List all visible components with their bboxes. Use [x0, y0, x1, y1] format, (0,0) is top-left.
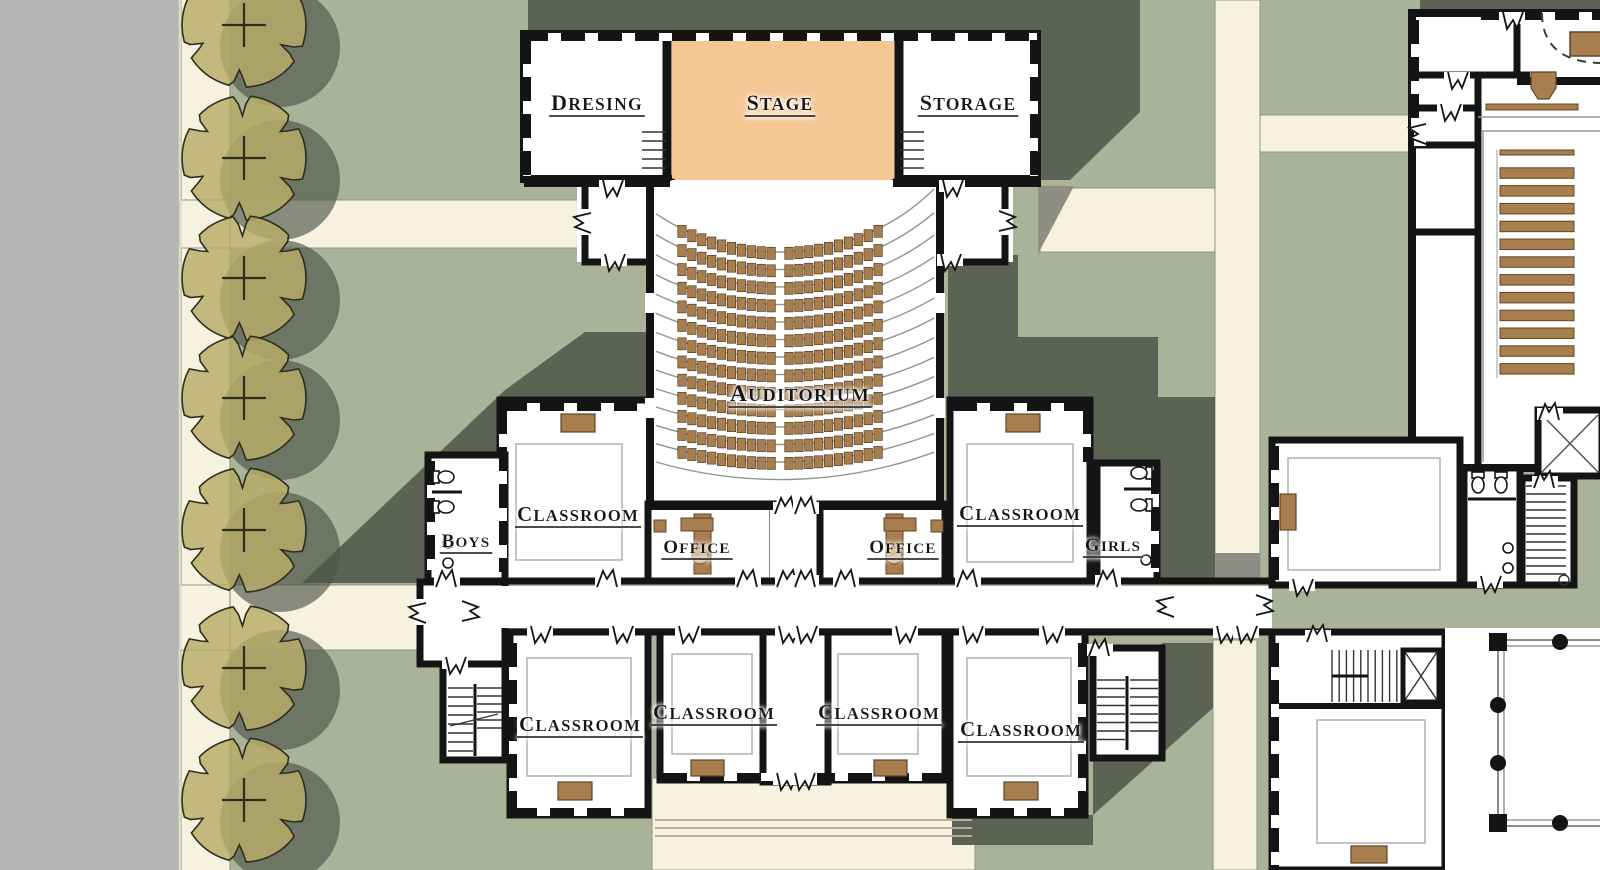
pew — [1500, 257, 1574, 268]
auditorium-seat — [834, 436, 842, 448]
auditorium-seat — [747, 263, 755, 275]
auditorium-seat — [678, 282, 686, 294]
auditorium-seat — [717, 330, 725, 342]
auditorium-seat — [767, 317, 775, 329]
auditorium-seat — [815, 456, 823, 468]
auditorium-seat — [698, 415, 706, 427]
auditorium-seat — [864, 359, 872, 371]
auditorium-seat — [854, 307, 862, 319]
auditorium-seat — [785, 352, 793, 364]
auditorium-seat — [805, 369, 813, 381]
auditorium-seat — [854, 361, 862, 373]
auditorium-seat — [678, 319, 686, 331]
room-label-classroom-bottom-1: CLASSROOM — [517, 712, 643, 737]
auditorium-seat — [688, 267, 696, 279]
auditorium-seat — [874, 374, 882, 386]
auditorium-seat — [747, 246, 755, 258]
auditorium-seat — [688, 286, 696, 298]
altar-rail — [1486, 104, 1578, 110]
auditorium-seat — [678, 374, 686, 386]
auditorium-seat — [678, 245, 686, 257]
auditorium-seat — [844, 345, 852, 357]
auditorium-seat — [688, 322, 696, 334]
auditorium-seat — [678, 356, 686, 368]
auditorium-seat — [708, 399, 716, 411]
auditorium-seat — [785, 300, 793, 312]
sink-icon — [1503, 543, 1513, 553]
auditorium-seat — [805, 404, 813, 416]
auditorium-seat — [874, 225, 882, 237]
auditorium-seat — [727, 314, 735, 326]
auditorium-seat — [854, 271, 862, 283]
teacher-desk — [561, 414, 595, 432]
auditorium-seat — [678, 446, 686, 458]
floor-plan-drawing: DRESINGSTAGESTORAGEAUDITORIUMCLASSROOMBO… — [0, 0, 1600, 870]
auditorium-seat — [834, 258, 842, 270]
file-cabinet — [654, 520, 666, 532]
auditorium-seat — [824, 260, 832, 272]
auditorium-seat — [864, 267, 872, 279]
toilet-icon — [1495, 477, 1507, 493]
auditorium-seat — [767, 300, 775, 312]
auditorium-seat — [708, 274, 716, 286]
auditorium-seat — [785, 247, 793, 259]
auditorium-seat — [815, 280, 823, 292]
auditorium-seat — [747, 369, 755, 381]
auditorium-seat — [795, 422, 803, 434]
pew — [1500, 239, 1574, 250]
auditorium-seat — [815, 368, 823, 380]
auditorium-seat — [737, 333, 745, 345]
pew — [1500, 364, 1574, 375]
auditorium-seat — [824, 455, 832, 467]
auditorium-seat — [844, 434, 852, 446]
auditorium-seat — [737, 438, 745, 450]
path-vertical-south — [1213, 640, 1257, 870]
auditorium-seat — [747, 281, 755, 293]
pew — [1500, 203, 1574, 214]
auditorium-seat — [795, 334, 803, 346]
auditorium-seat — [767, 440, 775, 452]
auditorium-seat — [698, 379, 706, 391]
auditorium-seat — [708, 237, 716, 249]
auditorium-seat — [698, 361, 706, 373]
room-label-auditorium: AUDITORIUM — [728, 381, 872, 407]
auditorium-seat — [854, 325, 862, 337]
room-label-text: CLASSROOM — [959, 501, 1081, 525]
auditorium-seat — [824, 437, 832, 449]
auditorium-seat — [717, 383, 725, 395]
site-plan-canvas: DRESINGSTAGESTORAGEAUDITORIUMCLASSROOMBO… — [0, 0, 1600, 870]
auditorium-seat — [717, 454, 725, 466]
room-label-text: DRESING — [551, 90, 643, 115]
porch-post — [1489, 633, 1507, 651]
auditorium-seat — [785, 282, 793, 294]
room-label-dresing: DRESING — [549, 90, 645, 116]
auditorium-seat — [854, 234, 862, 246]
auditorium-seat — [805, 246, 813, 258]
auditorium-seat — [727, 278, 735, 290]
auditorium-seat — [698, 433, 706, 445]
auditorium-seat — [717, 240, 725, 252]
auditorium-seat — [717, 312, 725, 324]
room-label-office-right: OFFICE — [867, 537, 939, 559]
room-label-text: CLASSROOM — [653, 700, 775, 724]
auditorium-seat — [767, 247, 775, 259]
auditorium-seat — [795, 370, 803, 382]
toilet-icon — [438, 501, 454, 513]
auditorium-seat — [698, 451, 706, 463]
auditorium-seat — [688, 449, 696, 461]
auditorium-seat — [805, 457, 813, 469]
auditorium-seat — [698, 325, 706, 337]
auditorium-seat — [834, 418, 842, 430]
auditorium-seat — [864, 286, 872, 298]
auditorium-seat — [678, 225, 686, 237]
room-label-text: OFFICE — [663, 537, 731, 558]
auditorium-seat — [815, 333, 823, 345]
room-label-text: BOYS — [442, 531, 491, 552]
auditorium-seat — [737, 368, 745, 380]
room-label-classroom-bottom-3: CLASSROOM — [816, 700, 942, 725]
pew — [1500, 292, 1574, 303]
sink-icon — [443, 558, 453, 568]
auditorium-seat — [815, 315, 823, 327]
auditorium-seat — [698, 234, 706, 246]
auditorium-seat — [854, 252, 862, 264]
auditorium-seat — [824, 242, 832, 254]
auditorium-seat — [834, 454, 842, 466]
pew — [1500, 186, 1574, 197]
teacher-desk — [874, 760, 907, 776]
auditorium-seat — [717, 401, 725, 413]
room-label-girls: GIRLS — [1083, 535, 1143, 557]
auditorium-seat — [815, 297, 823, 309]
auditorium-seat — [698, 397, 706, 409]
auditorium-seat — [717, 258, 725, 270]
auditorium-seat — [678, 338, 686, 350]
auditorium-seat — [708, 363, 716, 375]
auditorium-seat — [727, 242, 735, 254]
auditorium-seat — [874, 319, 882, 331]
room-label-classroom-bottom-4: CLASSROOM — [958, 717, 1084, 742]
auditorium-seat — [688, 249, 696, 261]
toilet-icon — [438, 471, 454, 483]
auditorium-seat — [717, 294, 725, 306]
auditorium-seat — [815, 244, 823, 256]
auditorium-seat — [688, 413, 696, 425]
auditorium-seat — [708, 452, 716, 464]
auditorium-seat — [727, 260, 735, 272]
auditorium-seat — [844, 363, 852, 375]
room-label-text: OFFICE — [869, 537, 937, 558]
auditorium-seat — [834, 240, 842, 252]
auditorium-seat — [824, 314, 832, 326]
auditorium-seat — [874, 264, 882, 276]
teacher-desk — [1351, 846, 1387, 863]
auditorium-seat — [767, 282, 775, 294]
auditorium-seat — [757, 299, 765, 311]
porch-column-icon — [1552, 815, 1568, 831]
auditorium-seat — [678, 392, 686, 404]
auditorium-seat — [708, 345, 716, 357]
auditorium-seat — [757, 440, 765, 452]
auditorium-seat — [785, 335, 793, 347]
auditorium-seat — [805, 316, 813, 328]
auditorium-seat — [757, 247, 765, 259]
auditorium-seat — [717, 418, 725, 430]
auditorium-seat — [767, 352, 775, 364]
sink-icon — [1503, 563, 1513, 573]
auditorium-seat — [717, 365, 725, 377]
auditorium-seat — [854, 343, 862, 355]
room-label-text: AUDITORIUM — [730, 381, 870, 406]
podium — [1531, 72, 1556, 99]
auditorium-seat — [824, 349, 832, 361]
toilet-icon — [1131, 467, 1147, 479]
auditorium-seat — [698, 252, 706, 264]
auditorium-seat — [698, 343, 706, 355]
auditorium-seat — [785, 422, 793, 434]
auditorium-seat — [805, 281, 813, 293]
auditorium-seat — [757, 422, 765, 434]
pew — [1500, 221, 1574, 232]
room-label-classroom-upper-left: CLASSROOM — [515, 502, 641, 527]
auditorium-seat — [834, 276, 842, 288]
auditorium-seat — [737, 244, 745, 256]
auditorium-seat — [874, 356, 882, 368]
auditorium-seat — [874, 446, 882, 458]
auditorium-seat — [824, 278, 832, 290]
auditorium-seat — [698, 289, 706, 301]
auditorium-seat — [767, 265, 775, 277]
room-label-text: GIRLS — [1085, 535, 1141, 556]
teacher-desk — [1280, 494, 1296, 530]
auditorium-seat — [824, 367, 832, 379]
auditorium-seat — [805, 422, 813, 434]
auditorium-seat — [805, 334, 813, 346]
auditorium-seat — [708, 328, 716, 340]
auditorium-seat — [834, 365, 842, 377]
room-label-text: CLASSROOM — [517, 502, 639, 526]
auditorium-seat — [747, 316, 755, 328]
auditorium-seat — [727, 455, 735, 467]
auditorium-seat — [824, 420, 832, 432]
teacher-desk — [691, 760, 724, 776]
auditorium-seat — [844, 255, 852, 267]
auditorium-seat — [874, 301, 882, 313]
auditorium-seat — [757, 352, 765, 364]
auditorium-seat — [708, 292, 716, 304]
auditorium-seat — [708, 381, 716, 393]
auditorium-seat — [737, 297, 745, 309]
auditorium-seat — [864, 230, 872, 242]
auditorium-seat — [678, 410, 686, 422]
auditorium-seat — [815, 262, 823, 274]
auditorium-seat — [815, 421, 823, 433]
auditorium-seat — [688, 395, 696, 407]
room-label-office-left: OFFICE — [661, 537, 733, 559]
teacher-desk — [1004, 782, 1038, 800]
auditorium-seat — [678, 301, 686, 313]
auditorium-seat — [708, 434, 716, 446]
auditorium-seat — [824, 296, 832, 308]
auditorium-seat — [727, 296, 735, 308]
auditorium-seat — [844, 417, 852, 429]
corridor — [432, 586, 1272, 628]
auditorium-seat — [844, 310, 852, 322]
auditorium-seat — [757, 317, 765, 329]
auditorium-seat — [727, 331, 735, 343]
auditorium-seat — [864, 449, 872, 461]
room-label-text: CLASSROOM — [960, 717, 1082, 741]
auditorium-seat — [834, 330, 842, 342]
auditorium-seat — [805, 351, 813, 363]
auditorium-seat — [795, 282, 803, 294]
auditorium-seat — [757, 264, 765, 276]
auditorium-seat — [737, 315, 745, 327]
auditorium-seat — [864, 322, 872, 334]
auditorium-seat — [757, 282, 765, 294]
auditorium-seat — [747, 422, 755, 434]
auditorium-seat — [805, 439, 813, 451]
auditorium-seat — [708, 417, 716, 429]
chapel-room-southwest — [1272, 440, 1460, 585]
auditorium-seat — [767, 370, 775, 382]
auditorium-seat — [785, 317, 793, 329]
auditorium-seat — [717, 436, 725, 448]
auditorium-seat — [727, 349, 735, 361]
auditorium-seat — [864, 413, 872, 425]
auditorium-seat — [874, 282, 882, 294]
auditorium-seat — [874, 338, 882, 350]
auditorium-seat — [747, 334, 755, 346]
auditorium-seat — [737, 262, 745, 274]
auditorium-seat — [678, 428, 686, 440]
auditorium-seat — [708, 310, 716, 322]
auditorium-seat — [785, 457, 793, 469]
room-label-text: CLASSROOM — [519, 712, 641, 736]
auditorium-seat — [737, 421, 745, 433]
room-label-classroom-upper-right: CLASSROOM — [957, 501, 1083, 526]
auditorium-seat — [737, 280, 745, 292]
auditorium-seat — [844, 452, 852, 464]
auditorium-seat — [747, 457, 755, 469]
auditorium-seat — [737, 456, 745, 468]
auditorium-seat — [688, 304, 696, 316]
auditorium-seat — [688, 431, 696, 443]
pew — [1500, 275, 1574, 286]
pew — [1500, 310, 1574, 321]
auditorium-seat — [815, 438, 823, 450]
auditorium-seat — [834, 347, 842, 359]
pew — [1500, 168, 1574, 179]
auditorium-seat — [785, 370, 793, 382]
auditorium-seat — [844, 237, 852, 249]
auditorium-seat — [747, 351, 755, 363]
auditorium-seat — [834, 294, 842, 306]
auditorium-seat — [864, 341, 872, 353]
office-desk — [681, 518, 713, 531]
auditorium-seat — [688, 359, 696, 371]
patio-courtyard — [652, 778, 975, 870]
auditorium-seat — [854, 450, 862, 462]
auditorium-seat — [717, 347, 725, 359]
pew — [1500, 150, 1574, 155]
auditorium-seat — [874, 392, 882, 404]
auditorium-seat — [795, 264, 803, 276]
auditorium-seat — [747, 299, 755, 311]
auditorium-seat — [854, 433, 862, 445]
auditorium-seat — [785, 440, 793, 452]
office-desk — [884, 518, 916, 531]
auditorium-seat — [864, 249, 872, 261]
porch-column-icon — [1490, 755, 1506, 771]
auditorium-seat — [824, 331, 832, 343]
auditorium-seat — [854, 289, 862, 301]
teacher-desk — [558, 782, 592, 800]
auditorium-seat — [757, 334, 765, 346]
road — [0, 0, 178, 870]
room-label-stage: STAGE — [745, 90, 816, 116]
auditorium-seat — [698, 271, 706, 283]
teacher-desk — [1006, 414, 1040, 432]
auditorium-seat — [844, 273, 852, 285]
auditorium-seat — [795, 247, 803, 259]
path-vertical-right — [1215, 0, 1260, 578]
auditorium-seat — [785, 265, 793, 277]
auditorium-seat — [795, 299, 803, 311]
auditorium-seat — [678, 264, 686, 276]
room-label-storage: STORAGE — [918, 90, 1019, 116]
auditorium-seat — [767, 457, 775, 469]
room-label-text: STORAGE — [920, 90, 1017, 115]
porch-column-icon — [1552, 634, 1568, 650]
communion-table — [1570, 32, 1600, 56]
auditorium-seat — [844, 328, 852, 340]
auditorium-seat — [727, 367, 735, 379]
lobby-between-offices — [770, 504, 823, 582]
auditorium-seat — [727, 420, 735, 432]
room-label-classroom-bottom-2: CLASSROOM — [651, 700, 777, 725]
auditorium-seat — [747, 404, 755, 416]
auditorium-seat — [874, 245, 882, 257]
porch-column-icon — [1490, 697, 1506, 713]
auditorium-seat — [717, 276, 725, 288]
auditorium-seat — [757, 457, 765, 469]
auditorium-seat — [815, 350, 823, 362]
auditorium-seat — [805, 299, 813, 311]
auditorium-seat — [874, 410, 882, 422]
auditorium-seat — [864, 304, 872, 316]
auditorium-seat — [795, 440, 803, 452]
auditorium-seat — [688, 341, 696, 353]
auditorium-seat — [795, 457, 803, 469]
auditorium-seat — [698, 307, 706, 319]
porch-post — [1489, 814, 1507, 832]
auditorium-seat — [727, 437, 735, 449]
toilet-icon — [1472, 477, 1484, 493]
toilet-icon — [1131, 499, 1147, 511]
room-label-text: CLASSROOM — [818, 700, 940, 724]
auditorium-seat — [737, 350, 745, 362]
pew — [1500, 328, 1574, 339]
auditorium-seat — [708, 255, 716, 267]
auditorium-seat — [805, 263, 813, 275]
auditorium-seat — [688, 377, 696, 389]
auditorium-seat — [844, 292, 852, 304]
file-cabinet — [931, 520, 943, 532]
